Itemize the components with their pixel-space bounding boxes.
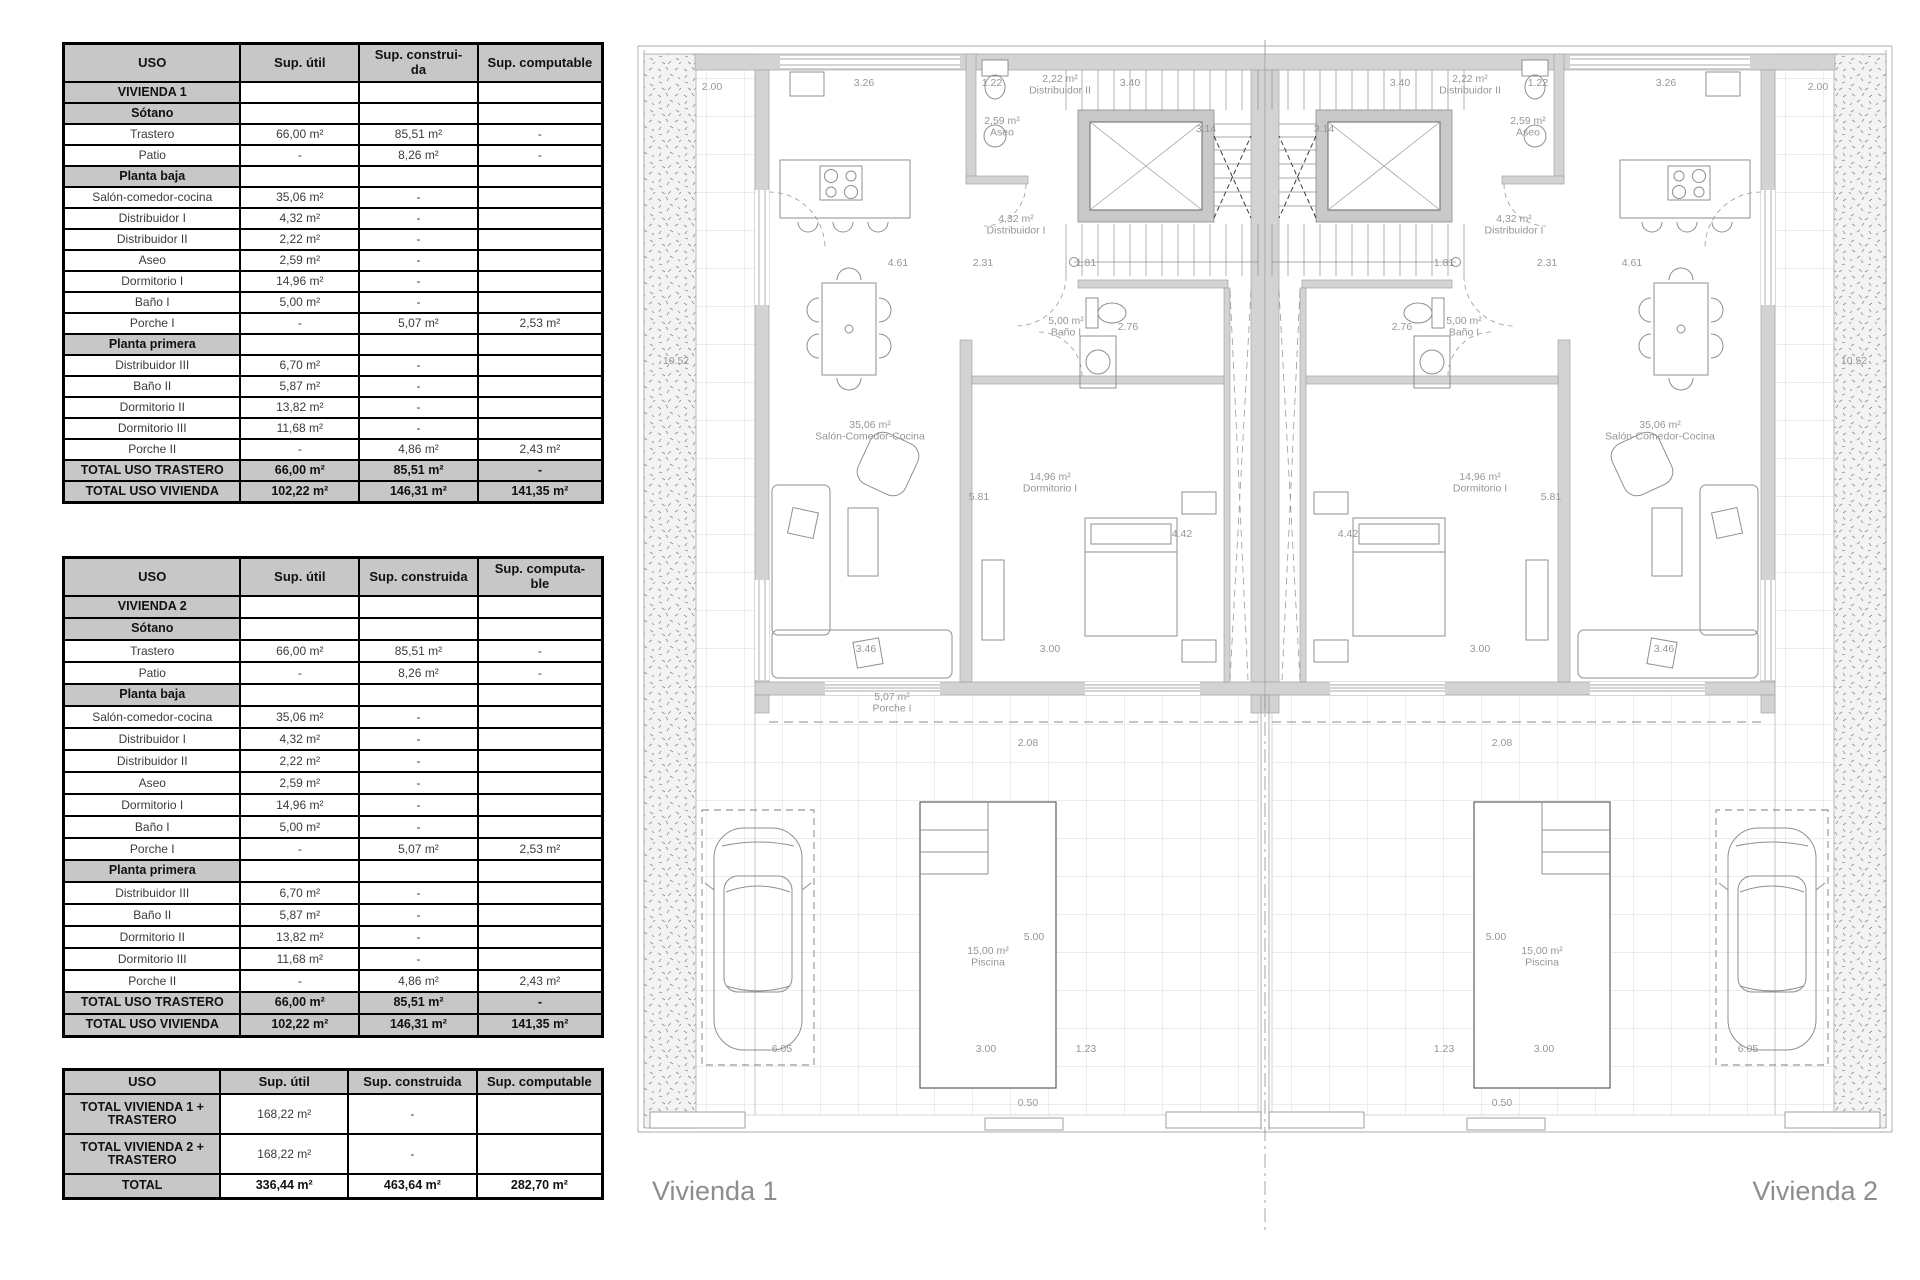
value-cell [478,772,603,794]
value-cell: 5,00 m² [240,816,359,838]
plan-label: 6.05 [772,1043,793,1055]
value-cell: 2,53 m² [478,313,603,334]
value-cell [478,904,603,926]
table-row: Dormitorio III11,68 m²- [64,948,603,970]
value-cell [359,82,478,103]
value-cell [478,397,603,418]
value-cell [359,618,478,640]
kitchen-sink-icon [790,72,824,96]
hatched-boundary-strip [644,54,696,1128]
value-cell [478,82,603,103]
value-cell [478,618,603,640]
row-label-cell: Dormitorio I [64,271,241,292]
value-cell: - [359,706,478,728]
plan-label: 5,00 m²Baño I [1446,315,1482,339]
table-row: Dormitorio I14,96 m²- [64,271,603,292]
plan-label: 2.00 [1808,81,1829,93]
table-row: VIVIENDA 2 [64,596,603,618]
plan-label: 2.76 [1392,321,1413,333]
value-cell: - [359,355,478,376]
value-cell [478,103,603,124]
plan-label: 3.00 [1040,643,1061,655]
value-cell: 141,35 m² [478,1014,603,1037]
table-row: TOTAL USO VIVIENDA102,22 m²146,31 m²141,… [64,1014,603,1037]
plan-label: 35,06 m²Salón-Comedor-Cocina [815,419,925,443]
value-cell: 168,22 m² [220,1094,348,1134]
plan-label: 4,32 m²Distribuidor I [1485,213,1544,237]
plan-label: 5.00 [1024,931,1045,943]
value-cell: - [359,250,478,271]
value-cell: - [478,662,603,684]
value-cell: 146,31 m² [359,1014,478,1037]
plan-label: 4.42 [1338,528,1359,540]
table-row: Planta baja [64,684,603,706]
nightstand [1182,640,1216,662]
row-label-cell: Patio [64,145,241,166]
value-cell: 141,35 m² [478,481,603,503]
value-cell: - [359,376,478,397]
row-label-cell: Porche II [64,439,241,460]
value-cell: - [348,1094,477,1134]
plan-label: 5,00 m²Baño I [1048,315,1084,339]
value-cell [478,355,603,376]
table-row: VIVIENDA 1 [64,82,603,103]
value-cell: 66,00 m² [240,992,359,1014]
plan-label: 3.26 [854,77,875,89]
row-label-cell: Planta primera [64,860,241,882]
plan-label: 14,96 m²Dormitorio I [1453,471,1507,495]
value-cell [478,882,603,904]
row-label-cell: TOTAL USO VIVIENDA [64,1014,241,1037]
value-cell [359,334,478,355]
table-header-cell: Sup. útil [240,44,359,83]
value-cell: - [359,728,478,750]
value-cell [478,926,603,948]
table-row: Salón-comedor-cocina35,06 m²- [64,706,603,728]
table-header-row: USOSup. útilSup. construi- daSup. comput… [64,44,603,83]
value-cell: 5,87 m² [240,904,359,926]
table-row: TOTAL USO VIVIENDA102,22 m²146,31 m²141,… [64,481,603,503]
value-cell: 5,07 m² [359,838,478,860]
value-cell [240,334,359,355]
value-cell: - [359,229,478,250]
value-cell: - [359,208,478,229]
table-header-cell: Sup. construida [348,1070,477,1095]
value-cell: 5,87 m² [240,376,359,397]
row-label-cell: Porche I [64,838,241,860]
table-header-row: USOSup. útilSup. construidaSup. computa-… [64,558,603,597]
value-cell: 282,70 m² [477,1174,603,1199]
plan-label: 2,59 m²Aseo [1510,115,1546,139]
row-label-cell: Planta primera [64,334,241,355]
plan-label: 2.00 [702,81,723,93]
row-label-cell: Baño II [64,376,241,397]
plan-label: 1.23 [1434,1043,1455,1055]
value-cell [478,684,603,706]
table-row: Sótano [64,618,603,640]
plan-label: 10.52 [663,355,689,367]
value-cell: 8,26 m² [359,145,478,166]
table-row: Baño II5,87 m²- [64,376,603,397]
plan-label: 0.50 [1492,1097,1513,1109]
row-label-cell: VIVIENDA 2 [64,596,241,618]
value-cell: 2,43 m² [478,439,603,460]
value-cell: - [359,271,478,292]
value-cell: 14,96 m² [240,794,359,816]
row-label-cell: TOTAL VIVIENDA 2 + TRASTERO [64,1134,221,1174]
table-vivienda-2-surfaces: USOSup. útilSup. construidaSup. computa-… [62,556,604,1038]
table-row: Distribuidor I4,32 m²- [64,728,603,750]
row-label-cell: VIVIENDA 1 [64,82,241,103]
row-label-cell: Baño II [64,904,241,926]
row-label-cell: Salón-comedor-cocina [64,187,241,208]
floor-plan-drawing: 2.002.003.263.261.221.222,22 m²Distribui… [630,40,1900,1250]
table-row: Baño I5,00 m²- [64,816,603,838]
plan-label: 0.50 [1018,1097,1039,1109]
value-cell: - [240,439,359,460]
value-cell: 85,51 m² [359,640,478,662]
row-label-cell: Aseo [64,772,241,794]
plan-label: 5.00 [1486,931,1507,943]
value-cell: 4,86 m² [359,970,478,992]
plan-label: 2.08 [1018,737,1039,749]
value-cell [478,418,603,439]
table-header-cell: Sup. computable [478,44,603,83]
row-label-cell: TOTAL [64,1174,221,1199]
plan-label: 3.40 [1120,77,1141,89]
row-label-cell: Distribuidor II [64,229,241,250]
plan-label: 4.61 [1622,257,1643,269]
row-label-cell: Dormitorio III [64,948,241,970]
value-cell [478,794,603,816]
table-header-cell: Sup. construi- da [359,44,478,83]
value-cell: 85,51 m² [359,460,478,481]
value-cell [478,334,603,355]
value-cell [240,166,359,187]
value-cell [478,948,603,970]
value-cell: - [359,882,478,904]
table-row: Sótano [64,103,603,124]
row-label-cell: TOTAL USO TRASTERO [64,992,241,1014]
value-cell [359,684,478,706]
value-cell [478,292,603,313]
value-cell: 2,22 m² [240,229,359,250]
value-cell [478,816,603,838]
value-cell: - [359,926,478,948]
row-label-cell: TOTAL USO TRASTERO [64,460,241,481]
value-cell: 2,59 m² [240,772,359,794]
plan-label: 3.14 [1196,123,1217,135]
floor-plan-panel: 2.002.003.263.261.221.222,22 m²Distribui… [630,40,1900,1250]
toilet-icon [1086,298,1098,328]
wardrobe [982,560,1004,640]
row-label-cell: Distribuidor III [64,882,241,904]
value-cell: 336,44 m² [220,1174,348,1199]
plan-label: 2.31 [1537,257,1558,269]
plan-label: 3.14 [1314,123,1335,135]
table-header-row: USOSup. útilSup. construidaSup. computab… [64,1070,603,1095]
plan-label: 5,07 m²Porche I [872,691,911,715]
plan-label: 3.40 [1390,77,1411,89]
value-cell [359,596,478,618]
value-cell: - [359,904,478,926]
plan-label: 4.42 [1172,528,1193,540]
plan-label: 15,00 m²Piscina [967,945,1009,969]
plan-label: 1.23 [1076,1043,1097,1055]
toilet-icon [982,60,1008,76]
row-label-cell: Dormitorio III [64,418,241,439]
row-label-cell: Dormitorio II [64,397,241,418]
table-row: TOTAL336,44 m²463,64 m²282,70 m² [64,1174,603,1199]
row-label-cell: Baño I [64,816,241,838]
plan-label: 2.08 [1492,737,1513,749]
value-cell: 13,82 m² [240,397,359,418]
table-row: Porche II-4,86 m²2,43 m² [64,970,603,992]
value-cell [478,706,603,728]
row-label-cell: Dormitorio I [64,794,241,816]
table-row: Dormitorio II13,82 m²- [64,397,603,418]
value-cell: 5,00 m² [240,292,359,313]
value-cell: 2,43 m² [478,970,603,992]
value-cell: 4,32 m² [240,728,359,750]
value-cell: 102,22 m² [240,481,359,503]
value-cell: - [359,187,478,208]
value-cell: - [359,750,478,772]
value-cell [240,684,359,706]
row-label-cell: TOTAL VIVIENDA 1 + TRASTERO [64,1094,221,1134]
table-row: Planta primera [64,860,603,882]
value-cell: 13,82 m² [240,926,359,948]
row-label-cell: Dormitorio II [64,926,241,948]
value-cell [478,250,603,271]
table-row: TOTAL VIVIENDA 2 + TRASTERO168,22 m²- [64,1134,603,1174]
value-cell [478,376,603,397]
value-cell: - [348,1134,477,1174]
row-label-cell: Sótano [64,618,241,640]
value-cell [477,1134,603,1174]
table-row: Porche I-5,07 m²2,53 m² [64,838,603,860]
row-label-cell: Distribuidor III [64,355,241,376]
value-cell: 2,59 m² [240,250,359,271]
value-cell: 6,70 m² [240,355,359,376]
dwelling-unit-geometry [638,46,1265,1132]
table-row: Baño II5,87 m²- [64,904,603,926]
value-cell [478,208,603,229]
value-cell: 66,00 m² [240,460,359,481]
plan-label: 2,59 m²Aseo [984,115,1020,139]
plan-label: 5.81 [969,491,990,503]
table-row: Baño I5,00 m²- [64,292,603,313]
value-cell: - [478,124,603,145]
value-cell: - [359,418,478,439]
value-cell: 14,96 m² [240,271,359,292]
value-cell [240,596,359,618]
value-cell [477,1094,603,1134]
row-label-cell: TOTAL USO VIVIENDA [64,481,241,503]
row-label-cell: Patio [64,662,241,684]
plan-label: 2.31 [973,257,994,269]
plan-label: 3.00 [976,1043,997,1055]
plan-label: 6.05 [1738,1043,1759,1055]
value-cell: 11,68 m² [240,948,359,970]
table-row: TOTAL VIVIENDA 1 + TRASTERO168,22 m²- [64,1094,603,1134]
value-cell: 6,70 m² [240,882,359,904]
value-cell [478,728,603,750]
plan-label: 5.81 [1541,491,1562,503]
table-row: Distribuidor III6,70 m²- [64,882,603,904]
row-label-cell: Sótano [64,103,241,124]
value-cell: - [478,145,603,166]
value-cell [478,860,603,882]
value-cell: - [359,397,478,418]
row-label-cell: Planta baja [64,166,241,187]
table-row: Trastero66,00 m²85,51 m²- [64,640,603,662]
value-cell [240,860,359,882]
table-row: Planta primera [64,334,603,355]
value-cell [240,103,359,124]
table-row: Aseo2,59 m²- [64,772,603,794]
nightstand [1182,492,1216,514]
value-cell [359,103,478,124]
row-label-cell: Distribuidor I [64,728,241,750]
value-cell: - [359,948,478,970]
table-header-cell: USO [64,558,241,597]
table-row: Porche I-5,07 m²2,53 m² [64,313,603,334]
plan-label: 2.76 [1118,321,1139,333]
table-row: Dormitorio II13,82 m²- [64,926,603,948]
value-cell: 102,22 m² [240,1014,359,1037]
value-cell: 85,51 m² [359,992,478,1014]
table-header-cell: USO [64,1070,221,1095]
bed [1085,518,1177,636]
table-row: Distribuidor I4,32 m²- [64,208,603,229]
row-label-cell: Trastero [64,640,241,662]
value-cell: 5,07 m² [359,313,478,334]
table-row: Patio-8,26 m²- [64,662,603,684]
table-row: Dormitorio I14,96 m²- [64,794,603,816]
plan-label: 1.81 [1076,257,1097,269]
value-cell: - [478,460,603,481]
plan-label: 3.46 [1654,643,1675,655]
table-row: Patio-8,26 m²- [64,145,603,166]
vivienda-2-label: Vivienda 2 [1752,1176,1878,1206]
table-row: Distribuidor III6,70 m²- [64,355,603,376]
row-label-cell: Porche II [64,970,241,992]
value-cell: 35,06 m² [240,706,359,728]
value-cell [359,166,478,187]
table-row: Distribuidor II2,22 m²- [64,750,603,772]
table-row: TOTAL USO TRASTERO66,00 m²85,51 m²- [64,460,603,481]
row-label-cell: Salón-comedor-cocina [64,706,241,728]
coffee-table [848,508,878,576]
value-cell [478,229,603,250]
row-label-cell: Distribuidor II [64,750,241,772]
value-cell [240,618,359,640]
plan-label: 3.26 [1656,77,1677,89]
washbasin-icon [1086,350,1110,374]
table-header-cell: Sup. útil [240,558,359,597]
table-header-cell: Sup. construida [359,558,478,597]
row-label-cell: Distribuidor I [64,208,241,229]
table-header-cell: Sup. útil [220,1070,348,1095]
value-cell [478,596,603,618]
row-label-cell: Baño I [64,292,241,313]
table-row: Dormitorio III11,68 m²- [64,418,603,439]
value-cell: 2,22 m² [240,750,359,772]
drawing-sheet: USOSup. útilSup. construi- daSup. comput… [0,0,1920,1280]
table-grand-totals: USOSup. útilSup. construidaSup. computab… [62,1068,604,1200]
value-cell [478,166,603,187]
value-cell: - [359,794,478,816]
value-cell: 4,32 m² [240,208,359,229]
table-row: Salón-comedor-cocina35,06 m²- [64,187,603,208]
plan-label: 4.61 [888,257,909,269]
table-header-cell: Sup. computa- ble [478,558,603,597]
value-cell [478,750,603,772]
plan-label: 4,32 m²Distribuidor I [987,213,1046,237]
row-label-cell: Trastero [64,124,241,145]
table-row: Distribuidor II2,22 m²- [64,229,603,250]
value-cell: - [359,772,478,794]
value-cell: 146,31 m² [359,481,478,503]
plan-label: 10.52 [1841,355,1867,367]
plan-label: 3.00 [1470,643,1491,655]
value-cell: - [478,992,603,1014]
value-cell: - [240,145,359,166]
table-header-cell: USO [64,44,241,83]
value-cell [240,82,359,103]
value-cell: 463,64 m² [348,1174,477,1199]
plan-label: 1.22 [1528,77,1549,89]
table-row: Porche II-4,86 m²2,43 m² [64,439,603,460]
plan-label: 14,96 m²Dormitorio I [1023,471,1077,495]
table-row: Trastero66,00 m²85,51 m²- [64,124,603,145]
row-label-cell: Aseo [64,250,241,271]
plan-label: 1.22 [982,77,1003,89]
value-cell [478,271,603,292]
plan-label: 15,00 m²Piscina [1521,945,1563,969]
value-cell: - [359,292,478,313]
row-label-cell: Planta baja [64,684,241,706]
value-cell: - [240,662,359,684]
vivienda-1-label: Vivienda 1 [652,1176,778,1206]
table-vivienda-1-surfaces: USOSup. útilSup. construi- daSup. comput… [62,42,604,504]
value-cell: - [240,838,359,860]
plan-label: 3.46 [856,643,877,655]
dining-table [822,283,876,375]
plan-label: 1.81 [1434,257,1455,269]
value-cell: 2,53 m² [478,838,603,860]
plan-label: 3.00 [1534,1043,1555,1055]
value-cell: - [240,313,359,334]
sofa [772,485,830,635]
value-cell: 8,26 m² [359,662,478,684]
value-cell: 66,00 m² [240,124,359,145]
value-cell: 35,06 m² [240,187,359,208]
table-row: TOTAL USO TRASTERO66,00 m²85,51 m²- [64,992,603,1014]
value-cell [359,860,478,882]
value-cell: 4,86 m² [359,439,478,460]
value-cell: 11,68 m² [240,418,359,439]
value-cell: - [240,970,359,992]
value-cell: 66,00 m² [240,640,359,662]
table-row: Planta baja [64,166,603,187]
value-cell: 85,51 m² [359,124,478,145]
plan-label: 35,06 m²Salón-Comedor-Cocina [1605,419,1715,443]
row-label-cell: Porche I [64,313,241,334]
value-cell [478,187,603,208]
value-cell: 168,22 m² [220,1134,348,1174]
